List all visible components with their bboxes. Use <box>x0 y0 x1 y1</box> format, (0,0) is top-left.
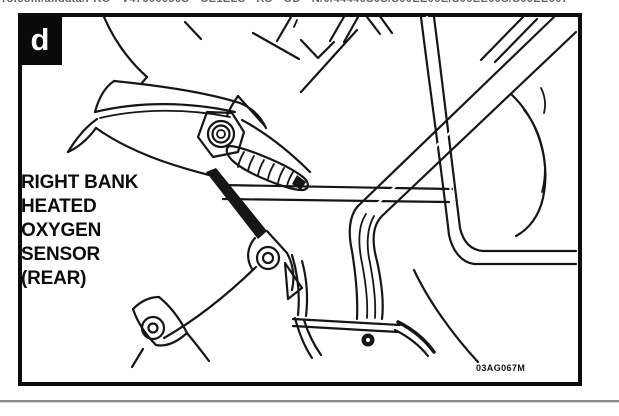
callout-line: SENSOR <box>21 243 138 267</box>
service-manual-figure-page: rolcom/alldata/PRO - V47600090S - CE1ELS… <box>0 0 619 416</box>
heat-shield-lines <box>221 185 452 202</box>
bottom-divider-shadow <box>0 402 619 403</box>
bracket-bolt <box>257 247 279 269</box>
panel-label: d <box>31 24 50 55</box>
callout-line: (REAR) <box>21 267 138 291</box>
lower-mounting-bracket <box>132 297 209 367</box>
sensor-wire-line <box>414 270 478 362</box>
callout-line: HEATED <box>21 195 138 219</box>
exhaust-pipe-lines <box>293 270 478 362</box>
panel-label-box: d <box>18 15 62 65</box>
engine-structure-lines <box>104 15 537 92</box>
callout-line: RIGHT BANK <box>21 171 138 195</box>
sensor-mounting-bracket <box>164 168 321 358</box>
callout-line: OXYGEN <box>21 219 138 243</box>
frame-pipe-diagonal <box>350 17 576 319</box>
sensor-callout-text: RIGHT BANK HEATED OXYGEN SENSOR (REAR) <box>21 171 138 291</box>
lower-bracket-bolt <box>142 317 164 339</box>
figure-code: 03AG067M <box>476 363 525 373</box>
engine-block-curves <box>512 88 545 236</box>
oxygen-sensor-threads <box>227 146 308 190</box>
